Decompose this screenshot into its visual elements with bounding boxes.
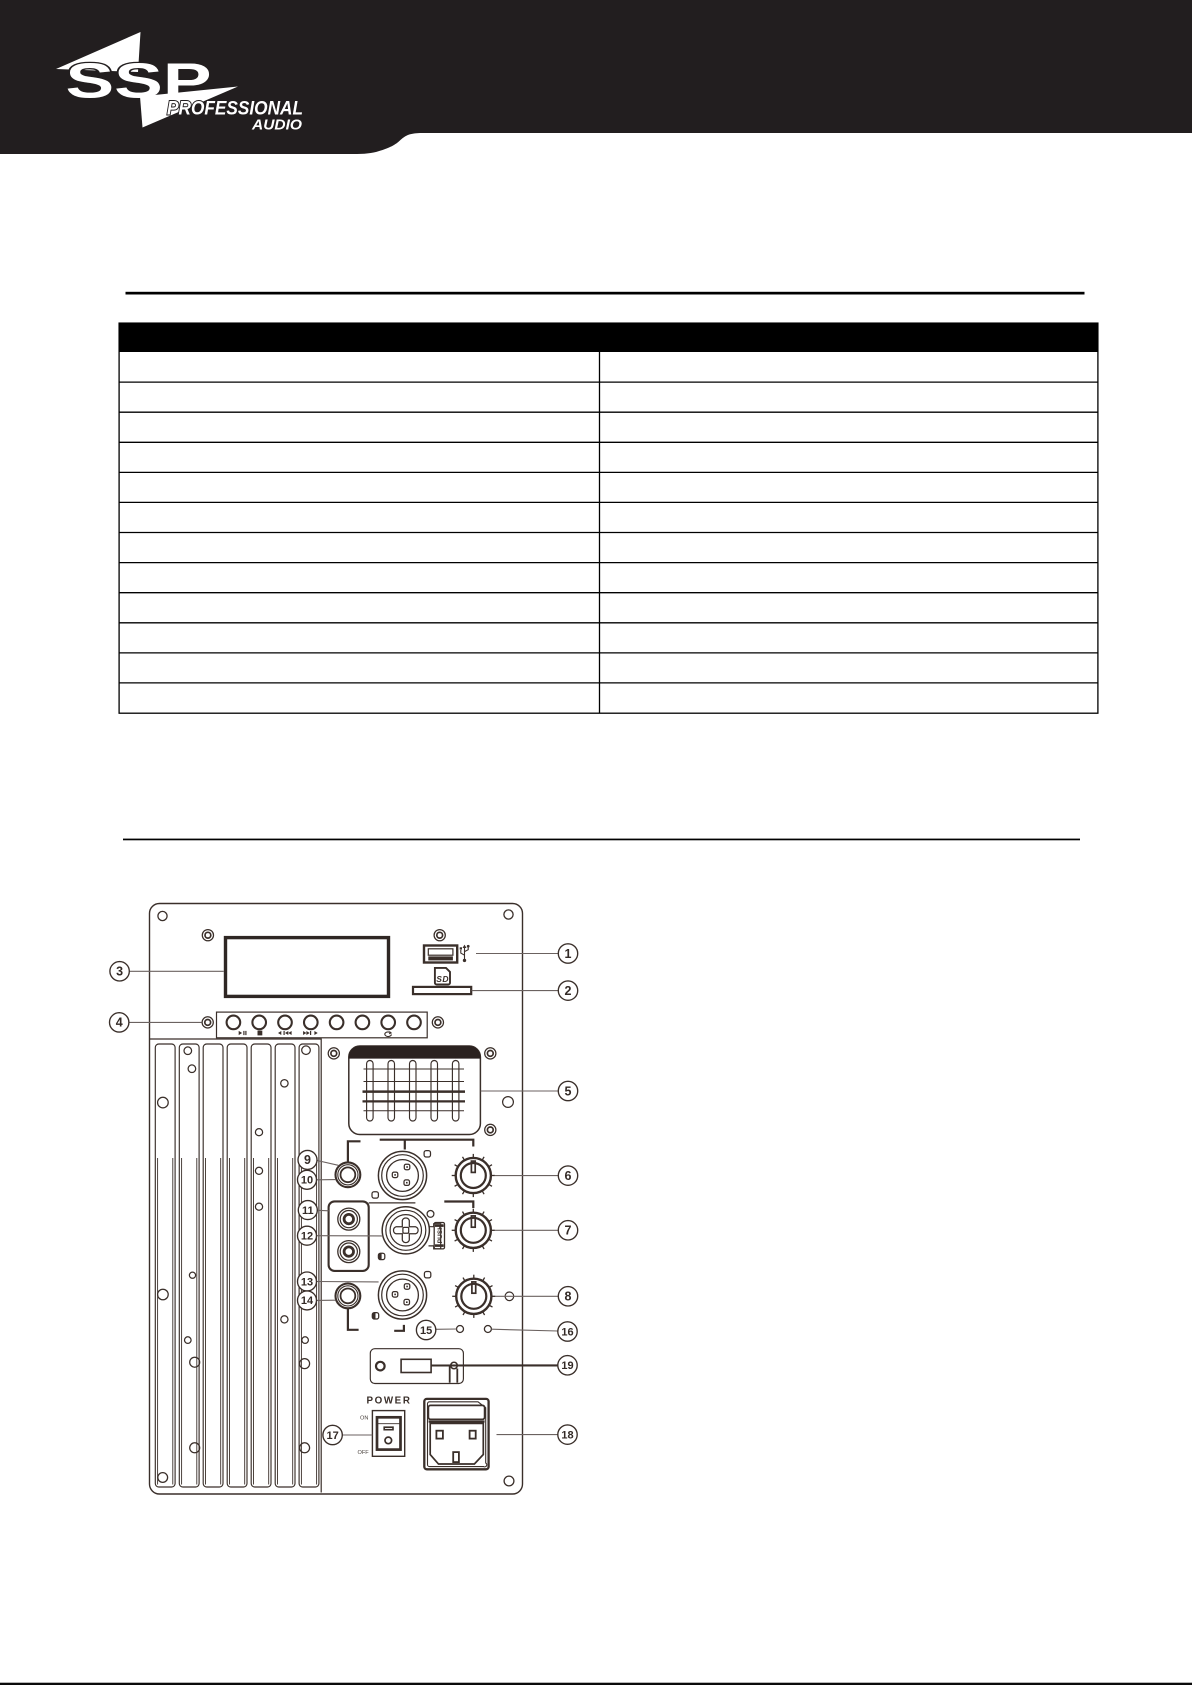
svg-text:ON: ON	[360, 1415, 368, 1421]
svg-text:18: 18	[561, 1429, 573, 1441]
svg-text:13: 13	[301, 1276, 313, 1288]
svg-text:4: 4	[116, 1016, 123, 1030]
svg-text:14: 14	[301, 1295, 314, 1307]
svg-text:6: 6	[565, 1169, 572, 1183]
svg-text:10: 10	[301, 1175, 313, 1187]
svg-text:9: 9	[304, 1153, 311, 1167]
svg-text:PROFESSIONAL: PROFESSIONAL	[167, 99, 303, 120]
svg-text:2: 2	[565, 984, 572, 998]
svg-text:1: 1	[565, 947, 572, 961]
svg-text:19: 19	[561, 1360, 573, 1372]
svg-text:7: 7	[565, 1224, 572, 1238]
svg-text:PUSH: PUSH	[437, 1225, 444, 1243]
svg-text:16: 16	[561, 1326, 573, 1338]
svg-text:5: 5	[565, 1084, 572, 1098]
svg-text:POWER: POWER	[366, 1396, 411, 1407]
svg-text:8: 8	[565, 1290, 572, 1304]
svg-text:3: 3	[116, 965, 123, 979]
svg-text:11: 11	[302, 1205, 314, 1217]
svg-text:15: 15	[420, 1325, 432, 1337]
svg-text:12: 12	[301, 1231, 313, 1243]
svg-text:17: 17	[326, 1430, 338, 1442]
svg-text:OFF: OFF	[358, 1450, 370, 1456]
svg-text:AUDIO: AUDIO	[251, 118, 303, 134]
svg-text:SD: SD	[436, 974, 449, 984]
